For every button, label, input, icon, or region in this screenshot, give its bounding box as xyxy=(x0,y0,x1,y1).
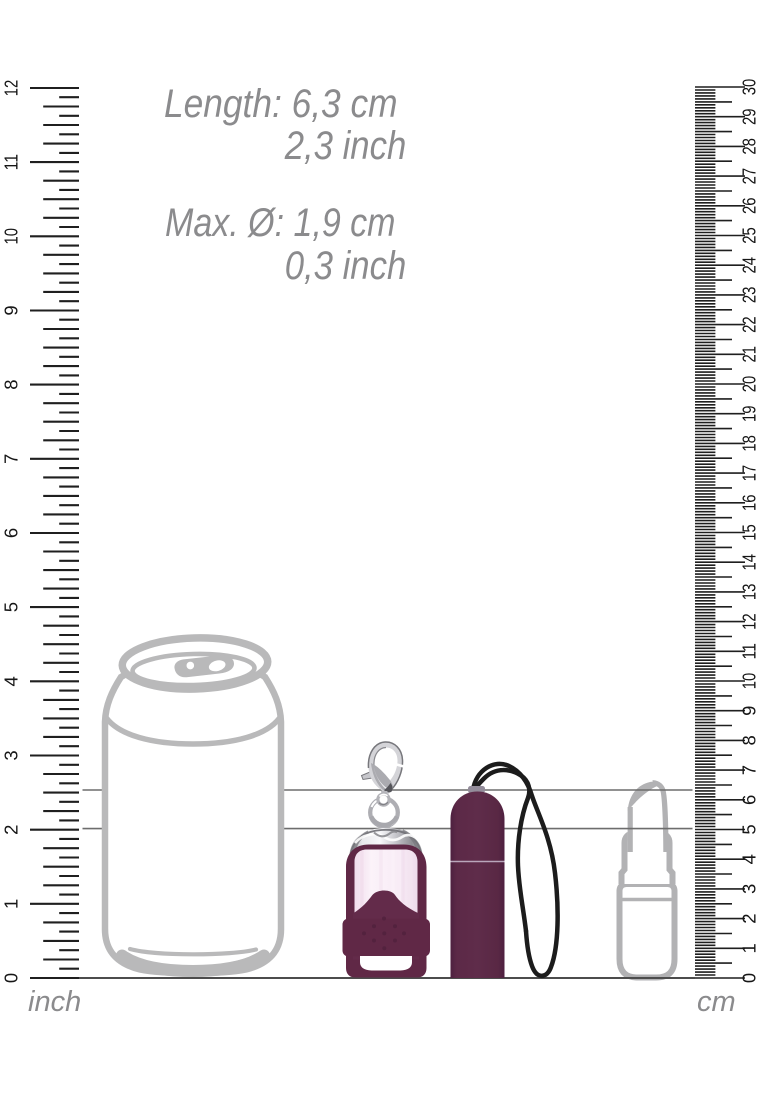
svg-text:15: 15 xyxy=(739,524,760,541)
svg-text:23: 23 xyxy=(739,287,760,304)
svg-text:Length: 6,3 cm: Length: 6,3 cm xyxy=(164,82,398,126)
svg-text:14: 14 xyxy=(739,554,760,571)
svg-text:3: 3 xyxy=(1,750,22,760)
svg-text:7: 7 xyxy=(739,765,760,775)
svg-text:7: 7 xyxy=(1,454,22,464)
svg-text:cm: cm xyxy=(697,986,736,1018)
svg-text:18: 18 xyxy=(739,435,760,452)
svg-text:21: 21 xyxy=(739,346,760,363)
svg-text:8: 8 xyxy=(1,379,22,389)
svg-text:22: 22 xyxy=(739,316,760,333)
svg-text:9: 9 xyxy=(1,305,22,315)
svg-text:5: 5 xyxy=(1,602,22,612)
svg-text:1: 1 xyxy=(1,899,22,909)
svg-text:27: 27 xyxy=(739,168,760,185)
svg-text:30: 30 xyxy=(739,79,760,96)
svg-text:Max. Ø: 1,9 cm: Max. Ø: 1,9 cm xyxy=(165,201,396,245)
svg-text:26: 26 xyxy=(739,198,760,215)
svg-text:2: 2 xyxy=(739,913,760,923)
svg-text:16: 16 xyxy=(739,495,760,512)
svg-text:11: 11 xyxy=(1,154,22,171)
svg-text:2: 2 xyxy=(1,825,22,835)
svg-text:5: 5 xyxy=(739,824,760,834)
svg-text:11: 11 xyxy=(739,643,760,660)
svg-text:12: 12 xyxy=(1,80,22,97)
svg-text:3: 3 xyxy=(739,884,760,894)
svg-text:24: 24 xyxy=(739,257,760,274)
svg-text:6: 6 xyxy=(1,528,22,538)
svg-text:4: 4 xyxy=(739,854,760,864)
svg-text:0: 0 xyxy=(739,973,760,983)
svg-text:12: 12 xyxy=(739,613,760,630)
svg-text:0,3 inch: 0,3 inch xyxy=(285,244,407,288)
svg-text:25: 25 xyxy=(739,227,760,244)
svg-text:2,3 inch: 2,3 inch xyxy=(284,124,406,168)
svg-text:13: 13 xyxy=(739,584,760,601)
svg-text:29: 29 xyxy=(739,108,760,125)
svg-text:0: 0 xyxy=(1,973,22,983)
svg-text:4: 4 xyxy=(1,676,22,686)
svg-text:1: 1 xyxy=(739,943,760,953)
svg-text:inch: inch xyxy=(28,986,81,1018)
svg-text:17: 17 xyxy=(739,465,760,482)
svg-text:20: 20 xyxy=(739,376,760,393)
svg-text:28: 28 xyxy=(739,138,760,155)
svg-text:8: 8 xyxy=(739,735,760,745)
svg-text:9: 9 xyxy=(739,706,760,716)
svg-text:10: 10 xyxy=(1,228,22,245)
svg-text:19: 19 xyxy=(739,405,760,422)
svg-text:6: 6 xyxy=(739,795,760,805)
svg-text:10: 10 xyxy=(739,673,760,690)
